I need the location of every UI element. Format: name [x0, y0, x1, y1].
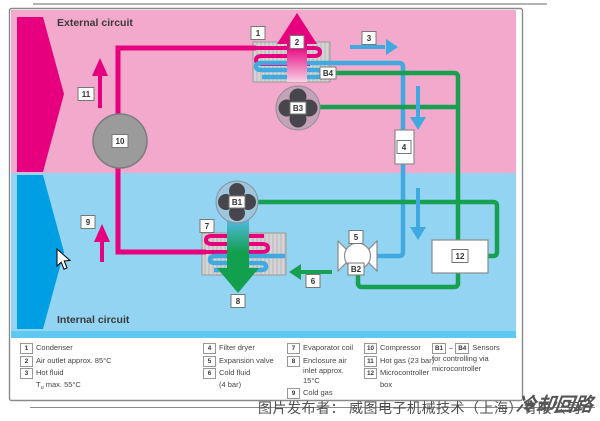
svg-text:8: 8 [236, 297, 241, 306]
legend-num-3: 3 [20, 368, 33, 379]
svg-text:B4: B4 [323, 69, 334, 78]
svg-text:9: 9 [86, 218, 91, 227]
legend-num-1: 1 [20, 343, 33, 354]
legend-item-sensors-2: for controlling via [432, 354, 489, 363]
legend-item-12b: box [380, 380, 392, 389]
legend-item-1: 1Condenser [20, 343, 73, 354]
legend-b1-box: B1 [432, 343, 446, 354]
svg-text:12: 12 [456, 252, 465, 261]
legend-item-7: 7Evaporator coil [287, 343, 353, 354]
svg-text:B2: B2 [351, 265, 362, 274]
legend-num-2: 2 [20, 356, 33, 367]
legend-item-12: 12Microcontroller [364, 368, 429, 379]
label-10: 10 [112, 135, 128, 148]
label-6: 6 [306, 275, 320, 288]
legend-item-2: 2Air outlet approx. 85°C [20, 356, 112, 367]
legend-num-5: 5 [203, 356, 216, 367]
label-1: 1 [251, 27, 265, 40]
legend-num-12: 12 [364, 368, 377, 379]
legend-item-10: 10Compressor [364, 343, 421, 354]
svg-text:B3: B3 [293, 104, 304, 113]
svg-text:1: 1 [256, 29, 261, 38]
legend-item-11: 11Hot gas (23 bar) [364, 356, 434, 367]
legend-num-4: 4 [203, 343, 216, 354]
legend-item-3b: Tu max. 55°C [36, 380, 81, 393]
label-7: 7 [200, 220, 214, 233]
legend-item-sensors-3: microcontroller [432, 364, 481, 373]
label-5: 5 [349, 231, 363, 244]
sensor-label-b2: B2 [348, 263, 364, 275]
label-8: 8 [231, 295, 245, 308]
watermark-text: 冷却回路 [515, 390, 595, 417]
legend-item-3: 3Hot fluid [20, 368, 64, 379]
legend-item-sensors: B1– B4Sensors [432, 343, 500, 354]
svg-text:5: 5 [354, 233, 359, 242]
legend-num-10: 10 [364, 343, 377, 354]
legend-item-8b: inlet approx. [303, 366, 344, 375]
legend-num-11: 11 [364, 356, 377, 367]
external-circuit-title: External circuit [57, 17, 133, 29]
label-12: 12 [452, 250, 468, 263]
svg-text:B1: B1 [232, 198, 243, 207]
label-4: 4 [397, 141, 411, 154]
svg-text:11: 11 [82, 90, 91, 99]
sensor-label-b4: B4 [320, 67, 336, 79]
sensor-label-b3: B3 [290, 102, 306, 114]
label-3: 3 [362, 32, 376, 45]
legend-num-6: 6 [203, 368, 216, 379]
legend-item-6: 6Cold fluid [203, 368, 250, 379]
svg-text:4: 4 [402, 143, 407, 152]
legend-divider-bar [11, 331, 516, 338]
legend-item-8c: 15°C [303, 376, 320, 385]
page: External circuit Internal circuit [0, 0, 600, 421]
legend-b4-box: B4 [455, 343, 469, 354]
label-2: 2 [290, 36, 304, 49]
legend-item-6b: (4 bar) [219, 380, 241, 389]
internal-circuit-title: Internal circuit [57, 314, 130, 326]
legend-num-8: 8 [287, 356, 300, 367]
label-9: 9 [81, 216, 95, 229]
legend-num-7: 7 [287, 343, 300, 354]
svg-text:2: 2 [295, 38, 300, 47]
sensor-label-b1: B1 [229, 196, 245, 208]
label-11: 11 [78, 88, 94, 101]
svg-text:6: 6 [311, 277, 316, 286]
svg-text:10: 10 [116, 137, 125, 146]
legend-item-8: 8Enclosure air [287, 356, 347, 367]
legend-item-4: 4Filter dryer [203, 343, 255, 354]
svg-text:3: 3 [367, 34, 372, 43]
legend-item-5: 5Expansion valve [203, 356, 274, 367]
svg-text:7: 7 [205, 222, 210, 231]
